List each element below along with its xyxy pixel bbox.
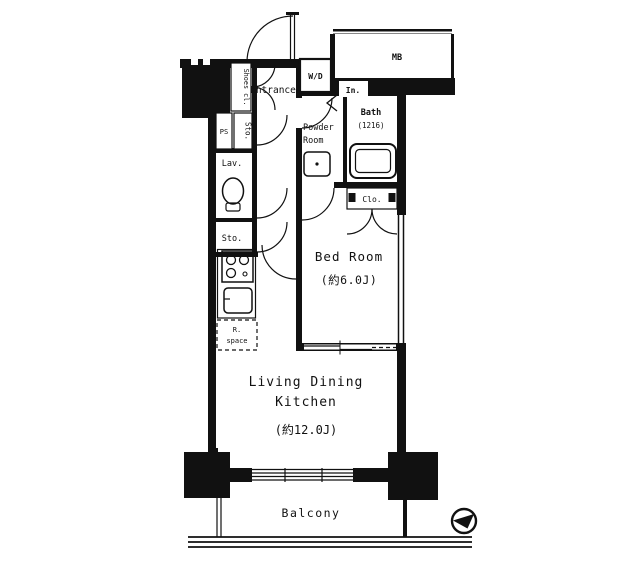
refrigerator-space-box — [217, 320, 257, 350]
bedroom-window — [399, 215, 404, 343]
wall-segment-right-outer — [397, 95, 406, 215]
mb-top-double-line — [333, 29, 452, 32]
lavatory-label: Lav. — [222, 159, 242, 169]
walls — [180, 29, 455, 537]
refrigerator-space-label-line1: R. — [233, 326, 241, 334]
storage-upper-door-arc — [257, 115, 287, 145]
wall-notch — [191, 59, 198, 65]
meter-box-label: MB — [392, 53, 402, 63]
entrance-door — [247, 12, 299, 62]
balcony-label: Balcony — [282, 506, 341, 520]
washer-dryer-label: W/D — [308, 72, 323, 81]
in-closet-label: In. — [346, 86, 360, 95]
pillar-left — [184, 452, 230, 498]
washbasin-icon — [304, 152, 330, 176]
bedroom-size-label: (約6.0J) — [321, 273, 378, 287]
bath-label: Bath — [361, 108, 381, 118]
ldk-balcony-window — [252, 468, 353, 482]
balcony-railing — [188, 537, 472, 547]
powder-room-label-line2: Room — [303, 136, 323, 146]
kitchen-counter-outline — [218, 250, 256, 319]
toilet-icon — [223, 178, 244, 211]
closet-label: Clo. — [362, 195, 381, 204]
wall-segment-left-outer — [208, 118, 216, 458]
floor-plan-svg: Entrance Shoes cl. W/D MB In. Powder Roo… — [0, 0, 640, 569]
pillar-right — [388, 452, 438, 500]
wall-segment — [451, 34, 454, 78]
ldk-size-label: (約12.0J) — [275, 422, 338, 437]
entrance-label: Entrance — [250, 85, 296, 96]
window-cap-right — [353, 468, 390, 482]
entrance-door-lintel — [286, 12, 299, 15]
compass-icon — [452, 509, 476, 533]
wall-segment-right-outer — [397, 343, 406, 458]
wall-notch — [203, 59, 210, 65]
sink-icon — [224, 288, 252, 313]
closet-door-arc — [347, 209, 372, 234]
hanger-pipe-end — [349, 193, 356, 202]
window-cap-left — [228, 468, 252, 482]
floor-plan-canvas: Entrance Shoes cl. W/D MB In. Powder Roo… — [0, 0, 640, 569]
bath-size-label: (1216) — [357, 121, 384, 130]
shoes-closet-label: Shoes cl. — [242, 69, 250, 106]
bedroom-door-arc — [302, 188, 334, 220]
wall-segment — [343, 96, 347, 182]
wall-segment — [182, 68, 230, 118]
wall-segment — [208, 448, 218, 460]
lavatory-door-arc — [257, 188, 287, 218]
wall-segment-hall-right — [296, 128, 302, 343]
closet-door-arc — [372, 209, 397, 234]
hanger-pipe-end — [389, 193, 396, 202]
wall-segment — [208, 218, 252, 222]
wall-segment-bedroom-top — [334, 182, 400, 188]
door-arcs — [252, 64, 397, 279]
balcony-right-wall — [403, 500, 407, 537]
bathtub-icon — [350, 144, 396, 178]
entrance-door-arc — [247, 16, 293, 62]
pipe-space-label: PS — [220, 128, 228, 136]
balcony-left-wall — [217, 498, 221, 537]
bedroom-label: Bed Room — [315, 249, 383, 264]
powder-room-label-line1: Powder — [303, 123, 334, 133]
storage-upper-label: Sto. — [244, 122, 253, 140]
bedroom-sliding-door — [304, 341, 396, 355]
ldk-label-line1: Living Dining — [249, 375, 364, 390]
storage-lower-label: Sto. — [222, 234, 242, 244]
refrigerator-space-label-line2: space — [226, 337, 247, 345]
ldk-label-line2: Kitchen — [275, 395, 337, 410]
wall-segment-bedroom-top — [296, 182, 302, 188]
